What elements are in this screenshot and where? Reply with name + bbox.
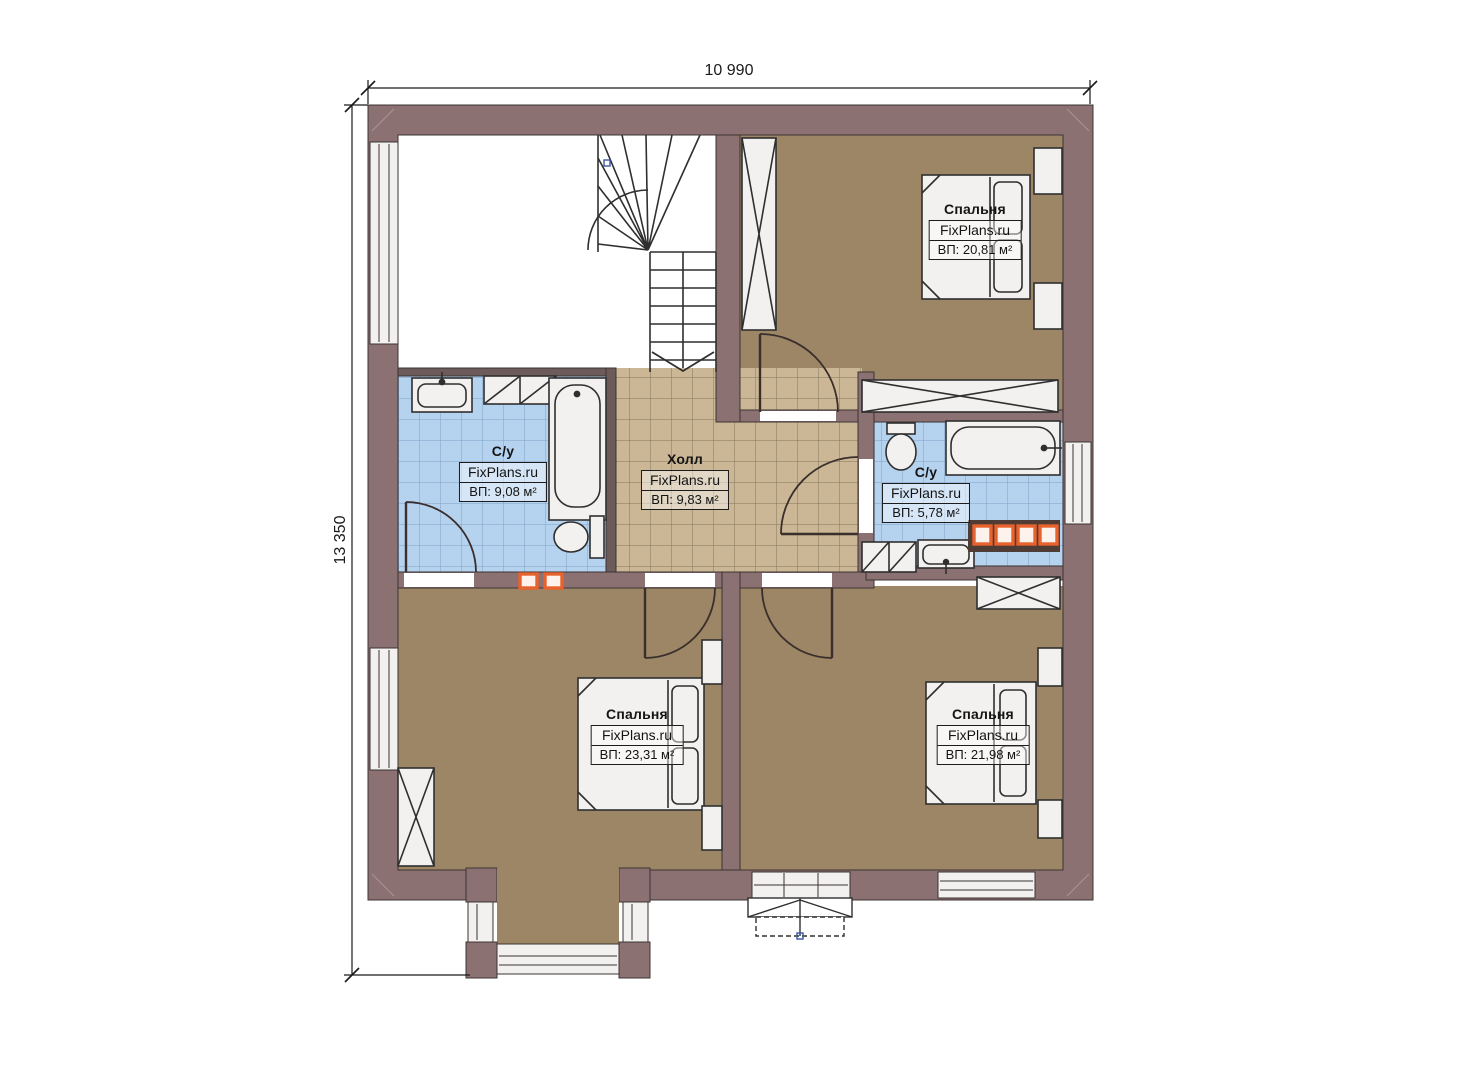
room-area: ВП: 9,08 м² [460,483,546,501]
nightstand-icon [702,640,722,684]
shelf-icon [484,376,556,404]
french-door-bottom [752,872,850,898]
room-info-box: FixPlans.ru ВП: 23,31 м² [591,725,684,765]
watermark: FixPlans.ru [938,726,1029,746]
room-label-hall: Холл FixPlans.ru ВП: 9,83 м² [641,451,729,510]
wardrobe-icon [398,768,434,866]
room-area: ВП: 9,83 м² [642,491,728,509]
wall-stair-bedroom [716,135,740,422]
room-name: Холл [667,451,703,467]
bay-pillar [619,868,650,902]
room-name: Спальня [952,706,1014,722]
floor-plan-page: 10 990 13 350 Спальня FixPlans.ru ВП: 20… [0,0,1473,1080]
window-left-stair [370,142,398,344]
threshold [760,411,836,421]
threshold [762,573,832,587]
bathtub-icon [549,378,606,520]
room-label-bedroom-bottom-left: Спальня FixPlans.ru ВП: 23,31 м² [591,706,684,765]
room-name: Спальня [606,706,668,722]
threshold [859,459,873,533]
dimension-left-label: 13 350 [332,516,350,565]
room-name: С/у [492,443,514,459]
nightstand-icon [1034,148,1062,194]
floor-plan-drawing [0,0,1473,1080]
window-right-bathroom [1065,442,1091,524]
window-left-bedroom [370,648,398,770]
watermark: FixPlans.ru [592,726,683,746]
wall-bedrooms-divider [722,572,740,870]
nightstand-icon [1038,648,1062,686]
dimension-top-label: 10 990 [705,62,754,80]
nightstand-icon [1038,800,1062,838]
threshold [404,573,474,587]
room-info-box: FixPlans.ru ВП: 9,83 м² [641,470,729,510]
cabinet-icon [862,542,916,572]
wall-bathL-hall [606,368,616,588]
window-bottom-bedroom [938,872,1035,898]
toilet-icon [886,423,916,470]
watermark: FixPlans.ru [883,484,969,504]
threshold [645,573,715,587]
room-info-box: FixPlans.ru ВП: 5,78 м² [882,483,970,523]
exterior-steps [748,898,852,939]
wardrobe-icon [862,380,1058,412]
room-area: ВП: 23,31 м² [592,746,683,764]
room-label-bedroom-top-right: Спальня FixPlans.ru ВП: 20,81 м² [929,201,1022,260]
watermark: FixPlans.ru [930,221,1021,241]
wall-bathL-top [398,368,616,376]
bay-pillar [619,942,650,978]
room-label-bedroom-bottom-right: Спальня FixPlans.ru ВП: 21,98 м² [937,706,1030,765]
room-name: С/у [915,464,937,480]
room-label-bathroom-right: С/у FixPlans.ru ВП: 5,78 м² [882,464,970,523]
room-area: ВП: 20,81 м² [930,241,1021,259]
stair-room-floor [398,135,716,372]
room-label-bathroom-left: С/у FixPlans.ru ВП: 9,08 м² [459,443,547,502]
bay-pillar [466,868,497,902]
watermark: FixPlans.ru [460,463,546,483]
nightstand-icon [1034,283,1062,329]
room-info-box: FixPlans.ru ВП: 21,98 м² [937,725,1030,765]
nightstand-icon [702,806,722,850]
watermark: FixPlans.ru [642,471,728,491]
sink-icon [412,372,472,412]
room-name: Спальня [944,201,1006,217]
wardrobe-icon [742,138,776,330]
bay-opening [497,868,619,902]
wardrobe-icon [977,577,1060,609]
room-info-box: FixPlans.ru ВП: 20,81 м² [929,220,1022,260]
room-area: ВП: 5,78 м² [883,504,969,522]
room-info-box: FixPlans.ru ВП: 9,08 м² [459,462,547,502]
room-area: ВП: 21,98 м² [938,746,1029,764]
bay-pillar [466,942,497,978]
